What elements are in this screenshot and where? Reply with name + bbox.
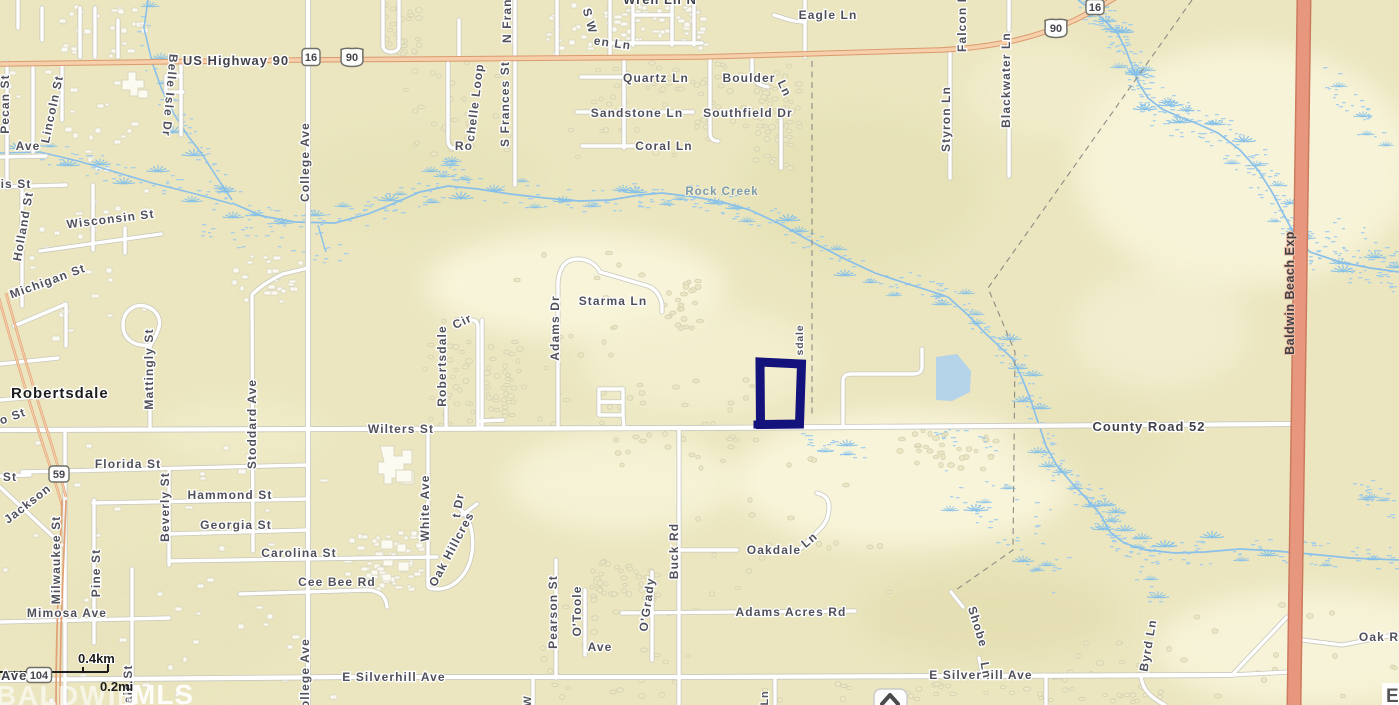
svg-text:Ave: Ave <box>16 139 41 153</box>
svg-text:Eagle Ln: Eagle Ln <box>799 8 858 22</box>
svg-text:Carolina St: Carolina St <box>261 546 336 560</box>
svg-text:Georgia St: Georgia St <box>200 518 272 532</box>
svg-text:Blackwater Ln: Blackwater Ln <box>999 32 1013 128</box>
svg-text:Beverly St: Beverly St <box>158 472 172 542</box>
svg-text:is St: is St <box>1 177 32 191</box>
svg-text:College Ave: College Ave <box>298 122 312 202</box>
svg-text:N Fran: N Fran <box>500 0 514 43</box>
svg-text:College Ave: College Ave <box>298 638 312 705</box>
svg-text:Ln: Ln <box>978 661 995 680</box>
svg-text:Ave: Ave <box>1 668 27 683</box>
svg-text:Baldwin Beach Exp: Baldwin Beach Exp <box>1283 231 1297 355</box>
svg-text:Adams Dr: Adams Dr <box>548 295 562 360</box>
svg-text:Oakdale: Oakdale <box>747 543 801 557</box>
svg-text:White Ave: White Ave <box>418 474 432 541</box>
svg-text:Oak R: Oak R <box>1359 630 1399 644</box>
svg-text:16: 16 <box>305 52 317 64</box>
svg-text:Wren Ln N: Wren Ln N <box>623 0 697 7</box>
svg-text:90: 90 <box>346 52 358 64</box>
svg-text:Adams Acres Rd: Adams Acres Rd <box>736 605 847 619</box>
svg-text:0.2mi: 0.2mi <box>100 679 133 694</box>
svg-text:US Highway 90: US Highway 90 <box>183 53 289 68</box>
svg-text:Mimosa Ave: Mimosa Ave <box>27 606 107 620</box>
svg-text:Robertsdale: Robertsdale <box>11 385 109 402</box>
svg-text:E: E <box>1386 686 1399 705</box>
svg-text:Pecan St: Pecan St <box>0 74 12 134</box>
svg-text:Coral Ln: Coral Ln <box>635 139 692 153</box>
svg-text:MLS: MLS <box>132 679 194 705</box>
svg-text:W: W <box>522 695 534 705</box>
svg-text:Falcon Ln: Falcon Ln <box>955 0 969 52</box>
svg-text:Quartz Ln: Quartz Ln <box>623 71 689 85</box>
svg-text:O'Toole: O'Toole <box>570 586 584 637</box>
svg-text:Styron Ln: Styron Ln <box>939 86 953 152</box>
svg-text:St: St <box>3 470 17 484</box>
svg-text:16: 16 <box>1089 2 1101 14</box>
svg-text:Hammond St: Hammond St <box>187 488 272 502</box>
svg-text:Pearson St: Pearson St <box>546 575 560 649</box>
svg-text:Boulder: Boulder <box>722 71 775 85</box>
svg-text:Buck Rd: Buck Rd <box>667 523 681 579</box>
svg-text:Stoddard Ave: Stoddard Ave <box>245 379 259 469</box>
svg-text:Wilters St: Wilters St <box>368 422 434 436</box>
svg-text:Southfield Dr: Southfield Dr <box>703 106 793 120</box>
svg-text:90: 90 <box>1050 23 1062 35</box>
svg-text:0.4km: 0.4km <box>78 651 115 666</box>
svg-text:Mattingly St: Mattingly St <box>142 328 156 409</box>
svg-text:Florida St: Florida St <box>95 457 161 471</box>
svg-text:Rock Creek: Rock Creek <box>685 186 758 198</box>
svg-text:County Road 52: County Road 52 <box>1093 419 1206 434</box>
svg-text:104: 104 <box>30 670 49 682</box>
svg-text:Milwaukee St: Milwaukee St <box>49 516 63 605</box>
svg-text:Cee Bee Rd: Cee Bee Rd <box>298 575 376 589</box>
svg-text:Ave: Ave <box>588 640 613 654</box>
svg-text:Pine St: Pine St <box>89 549 103 597</box>
svg-text:Sandstone Ln: Sandstone Ln <box>591 106 684 120</box>
svg-text:S Frances St: S Frances St <box>498 61 512 147</box>
svg-text:Robertsdale: Robertsdale <box>435 325 449 406</box>
svg-text:E Silverhill Ave: E Silverhill Ave <box>342 670 445 684</box>
svg-text:59: 59 <box>53 469 65 481</box>
svg-text:Ln: Ln <box>759 690 771 705</box>
svg-text:Starma Ln: Starma Ln <box>579 294 648 308</box>
svg-text:sdale: sdale <box>794 325 806 356</box>
